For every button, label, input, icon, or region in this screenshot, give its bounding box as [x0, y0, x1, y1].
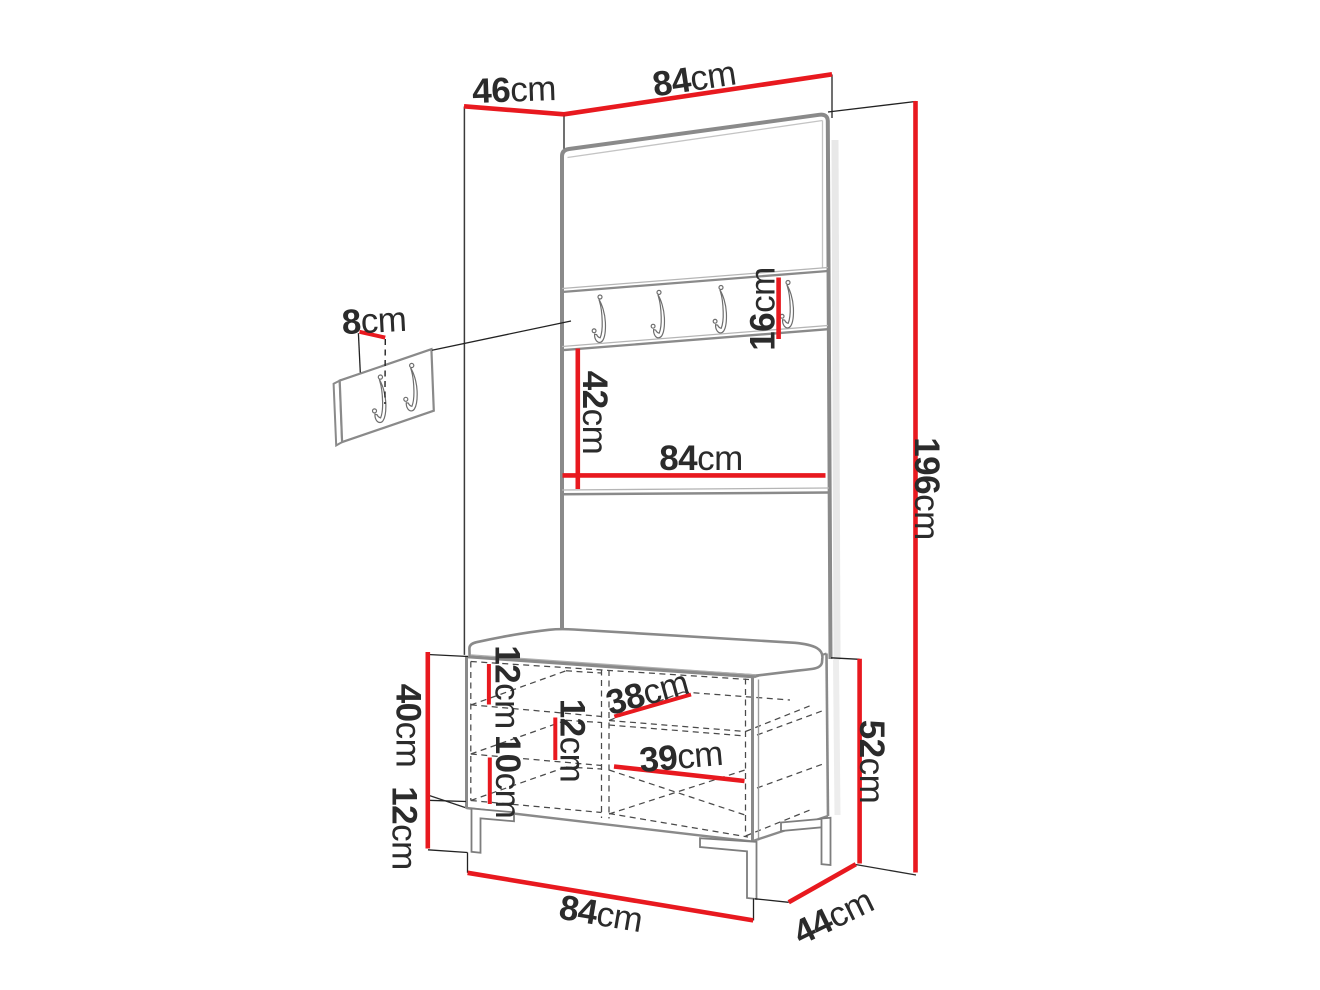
svg-text:12cm: 12cm: [488, 645, 527, 729]
svg-text:42cm: 42cm: [575, 371, 614, 455]
svg-text:8cm: 8cm: [341, 300, 408, 342]
svg-text:16cm: 16cm: [744, 267, 783, 351]
svg-text:12cm: 12cm: [385, 786, 424, 870]
svg-text:52cm: 52cm: [852, 720, 891, 804]
svg-text:84cm: 84cm: [659, 439, 743, 478]
svg-text:46cm: 46cm: [472, 69, 557, 111]
svg-text:196cm: 196cm: [907, 437, 946, 540]
svg-text:12cm: 12cm: [553, 699, 592, 783]
svg-text:40cm: 40cm: [389, 684, 428, 768]
svg-text:10cm: 10cm: [488, 735, 527, 819]
svg-text:39cm: 39cm: [638, 734, 725, 780]
